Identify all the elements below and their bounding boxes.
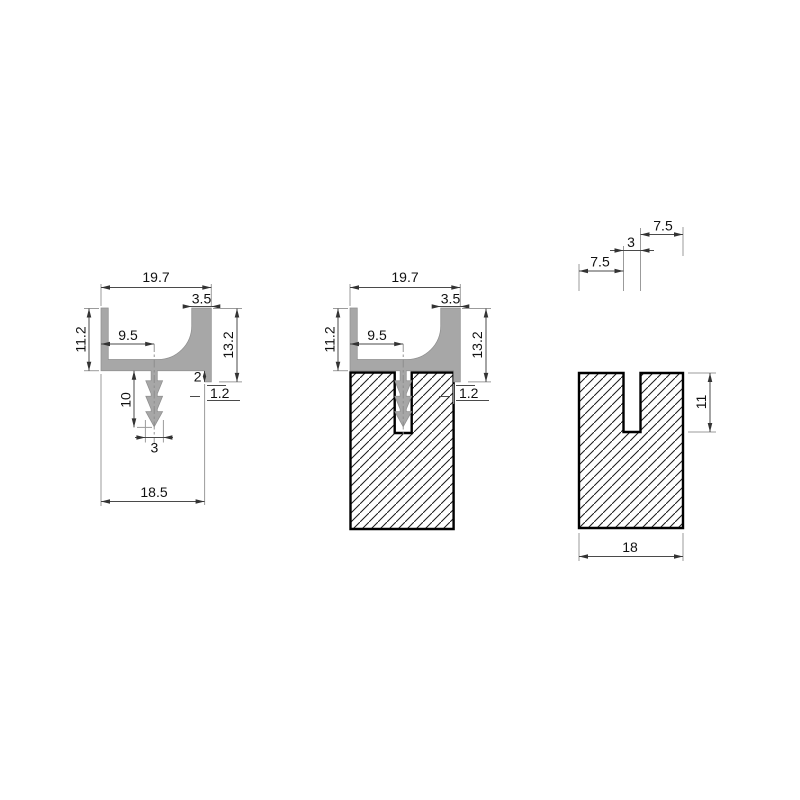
dim-flange-width: 3.5 — [433, 291, 468, 307]
dim-lip-width: 1.2 — [190, 384, 240, 505]
dim-label-wall-height: 11.2 — [322, 326, 338, 352]
dim-shoulder-left: 7.5 — [579, 246, 624, 291]
dim-total-height: 13.2 — [462, 309, 491, 382]
dim-label-lip-width: 1.2 — [459, 385, 479, 401]
dim-label-shoulder-left: 7.5 — [590, 254, 610, 270]
dim-label-stem-offset: 9.5 — [118, 327, 138, 343]
view-profile-installed: 19.7 3.5 11.2 9.5 13.2 — [322, 269, 492, 529]
dim-label-stem-offset: 9.5 — [367, 327, 387, 343]
dim-label-overall-width: 19.7 — [142, 269, 169, 285]
dim-wall-height: 11.2 — [73, 309, 100, 371]
dim-total-height: 13.2 — [213, 309, 242, 382]
dim-label-overall-width: 19.7 — [391, 269, 418, 285]
technical-drawing: 19.7 3.5 11.2 9.5 13.2 2 — [0, 0, 800, 800]
view-slot-block: 7.5 3 7.5 11 18 — [579, 218, 716, 562]
dim-label-stem-length: 10 — [118, 392, 134, 408]
dim-label-stem-width: 3 — [151, 440, 159, 456]
drawing-canvas: 19.7 3.5 11.2 9.5 13.2 2 — [0, 0, 800, 800]
dim-block-width: 18 — [579, 533, 683, 561]
dim-flange-width: 3.5 — [184, 291, 219, 307]
dim-stem-offset: 9.5 — [101, 327, 154, 443]
slotted-block — [579, 373, 683, 528]
dim-label-slot-depth: 11 — [693, 395, 709, 410]
dim-wall-height: 11.2 — [322, 309, 349, 371]
dim-label-lip-width: 1.2 — [210, 385, 230, 401]
dim-label-base-width: 18.5 — [140, 484, 167, 500]
dim-slot-width: 3 — [610, 228, 654, 291]
dim-label-total-height: 13.2 — [469, 331, 485, 358]
profile-shape — [101, 308, 211, 427]
dim-label-wall-height: 11.2 — [73, 326, 89, 352]
view-profile-section: 19.7 3.5 11.2 9.5 13.2 2 — [73, 269, 243, 506]
dim-label-slot-width: 3 — [627, 234, 635, 250]
dim-label-total-height: 13.2 — [220, 331, 236, 358]
dim-slot-depth: 11 — [688, 373, 716, 432]
dim-label-flange-width: 3.5 — [192, 291, 212, 307]
dim-label-flange-width: 3.5 — [441, 291, 461, 307]
dim-label-step-depth: 2 — [194, 369, 202, 385]
dim-label-block-width: 18 — [622, 539, 638, 555]
dim-label-shoulder-right: 7.5 — [653, 218, 673, 234]
